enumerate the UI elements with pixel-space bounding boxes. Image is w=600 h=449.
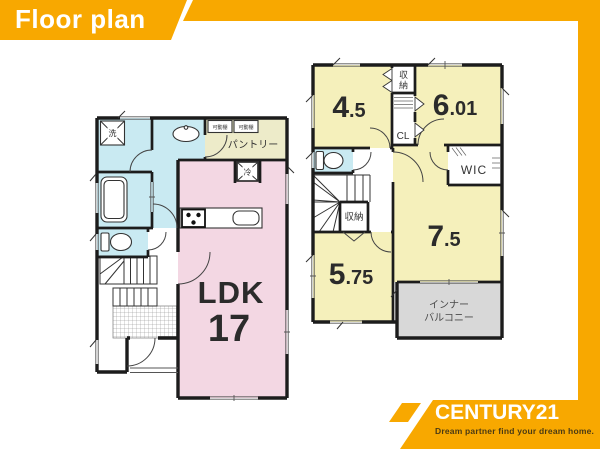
shelf-left-label: 可動棚 — [212, 124, 227, 131]
kitchen-sink — [233, 211, 259, 225]
shelf-right-label: 可動棚 — [238, 124, 253, 131]
ldk-size: 17 — [208, 308, 250, 350]
right-gold-band — [578, 0, 600, 449]
balcony-label-2: バルコニー — [424, 312, 474, 324]
logo-chip — [389, 403, 421, 422]
stairs-1f — [100, 256, 157, 306]
page: Floor plan — [0, 0, 600, 449]
closet-cl-label: CL — [397, 131, 410, 142]
fixtures-2f — [316, 152, 343, 170]
closet-stairs-label: 収納 — [344, 211, 363, 223]
brand-tagline: Dream partner find your dream home. — [435, 426, 594, 436]
pantry-label: パントリー — [228, 139, 279, 151]
century21-logo: CENTURY21 Dream partner find your dream … — [398, 400, 600, 449]
ldk-label: LDK — [198, 275, 265, 310]
washer-label: 洗 — [109, 128, 117, 138]
closet-top-label: 収納 — [399, 69, 408, 91]
toilet-tank-2f — [316, 152, 324, 170]
brand-name: CENTURY21 — [435, 401, 559, 425]
banner-title: Floor plan — [15, 4, 146, 35]
floorplan-1f: 洗 冷 可動棚 可動棚 パントリー LDK 17 — [85, 108, 300, 405]
toilet-bowl-2f — [324, 153, 343, 169]
fridge-label: 冷 — [244, 167, 252, 177]
floorplan-2f: 4.5 6.01 7.5 5.75 収納 CL WIC 収納 インナー バルコニ… — [303, 53, 513, 348]
genkan-tile — [113, 306, 178, 338]
toilet-tank-1f — [101, 233, 109, 251]
wic-label: WIC — [461, 163, 487, 177]
balcony-label-1: インナー — [429, 299, 469, 311]
toilet-bowl-1f — [111, 234, 132, 251]
top-gold-band — [183, 0, 600, 21]
stairs-2f — [313, 175, 370, 232]
